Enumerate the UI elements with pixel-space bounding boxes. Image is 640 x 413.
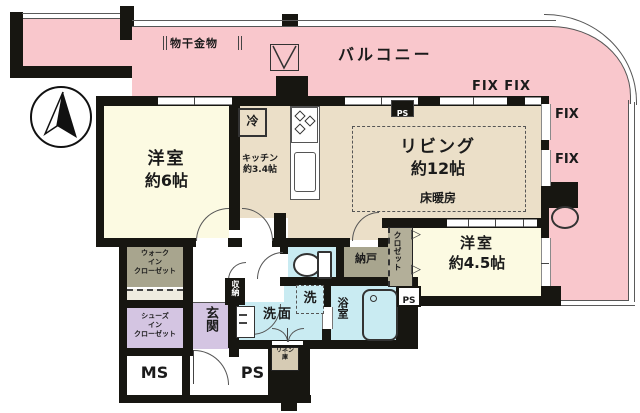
balcony-rail-outer-bottom (548, 305, 635, 306)
living-name: リビング (352, 138, 524, 157)
floor-heating-label: 床暖房 (352, 192, 524, 205)
storage-room-label: 納戸 (344, 253, 388, 265)
window-mullion (381, 97, 382, 105)
fix-label-low: FIX (555, 153, 579, 167)
wall-toilet-storage (336, 247, 344, 277)
bathtub-icon (362, 289, 398, 341)
balcony-rail-outer-top (132, 20, 556, 21)
ps-bath-label: PS (402, 296, 415, 306)
laundry-hook-mark (238, 36, 239, 50)
wall-wic-sic (119, 300, 193, 308)
entry-door-leaf (193, 350, 194, 384)
entry-door (194, 350, 229, 385)
window-mullion (468, 219, 469, 227)
window-mullion (194, 97, 195, 105)
fix-window-2 (541, 150, 551, 186)
fix-pair-label: FIX FIX (472, 80, 531, 94)
kitchen-sink (294, 152, 316, 192)
western6-name: 洋室 (104, 150, 229, 169)
linen-box: リネン 庫 (271, 347, 299, 371)
outer-wall-left-lower (119, 238, 127, 403)
powder-bifold-center (287, 328, 288, 341)
wall-western45-bottom (406, 296, 549, 306)
balcony-rail-outer-corner (544, 14, 637, 105)
kitchen-size: 約3.4帖 (231, 166, 289, 176)
western6-size: 約6帖 (104, 172, 229, 190)
window-western6 (158, 97, 232, 105)
entrance-label: 玄関 (204, 306, 217, 346)
wall-hall-stub (228, 238, 242, 247)
laundry-hook-mark (241, 36, 242, 50)
compass (30, 86, 92, 148)
wall-powder-bottom (234, 340, 418, 349)
stove (291, 107, 318, 143)
utility-block-foot (281, 400, 297, 411)
ps-bath-box: PS (397, 286, 421, 307)
fridge-label: 冷 (246, 114, 258, 128)
sic-label-1: シューズ (127, 313, 183, 321)
balcony-upper-left (22, 18, 132, 71)
balcony-label: バルコニー (338, 46, 433, 64)
north-arrow-icon (32, 88, 90, 146)
window-living-3 (525, 97, 541, 105)
laundry-hook-label: 物干金物 (170, 38, 218, 50)
window-mullion (523, 219, 524, 227)
western45-name: 洋室 (413, 235, 541, 252)
balcony-lower-wall (10, 66, 132, 78)
bath-label: 浴室 (337, 297, 348, 337)
western45-size: 約4.5帖 (413, 255, 541, 272)
window-mullion (541, 263, 549, 264)
fix-label-mid: FIX (555, 108, 579, 122)
window-mullion (495, 219, 496, 227)
wic-label-2: イン (127, 259, 183, 267)
outer-wall-left-upper (96, 96, 104, 247)
water-heater-block (548, 182, 578, 208)
wic-label-3: クローゼット (127, 268, 183, 276)
laundry-hook-mark (166, 36, 167, 50)
closet-label: クロゼット (393, 231, 401, 283)
wic-label-1: ウォーク (127, 250, 183, 258)
vanity-faucet-icon (239, 322, 247, 324)
laundry-label: 洗 (303, 291, 316, 306)
laundry-hook-mark (163, 36, 164, 50)
sic-label-2: イン (127, 322, 183, 330)
wall-ms-right (182, 348, 190, 403)
powder-label: 洗面 (234, 308, 322, 322)
escape-hatch-icon (270, 44, 299, 71)
kitchen-pillar (276, 76, 308, 106)
wall-wic-right (183, 238, 193, 353)
balcony-rail-outer-left (22, 13, 132, 14)
wall-hall-toilet (274, 213, 286, 247)
kitchen-name: キッチン (231, 155, 289, 165)
toilet-tank (317, 251, 332, 279)
sic-label-3: クローゼット (127, 331, 183, 339)
fridge-box: 冷 (238, 108, 267, 137)
ps-living-box: PS (391, 100, 414, 117)
hall-storage-label: 収納 (231, 280, 239, 304)
bathtub-drain (370, 295, 377, 302)
wall-western6-bottom (96, 238, 196, 247)
ps-bottom-label: PS (237, 364, 268, 382)
window-mullion (473, 97, 474, 105)
fix-window-1 (541, 104, 551, 140)
balcony-rail-outer-right (634, 102, 635, 302)
ms-label: MS (127, 364, 182, 382)
floor-plan: 物干金物 バルコニー FIX FIX FIX FIX (0, 0, 640, 413)
linen-label-2: 庫 (272, 355, 298, 362)
door-toilet (257, 252, 283, 279)
ps-living-label: PS (397, 109, 409, 118)
water-heater-vent-icon (551, 206, 579, 229)
window-western45 (541, 238, 551, 290)
living-size: 約12帖 (352, 160, 524, 178)
